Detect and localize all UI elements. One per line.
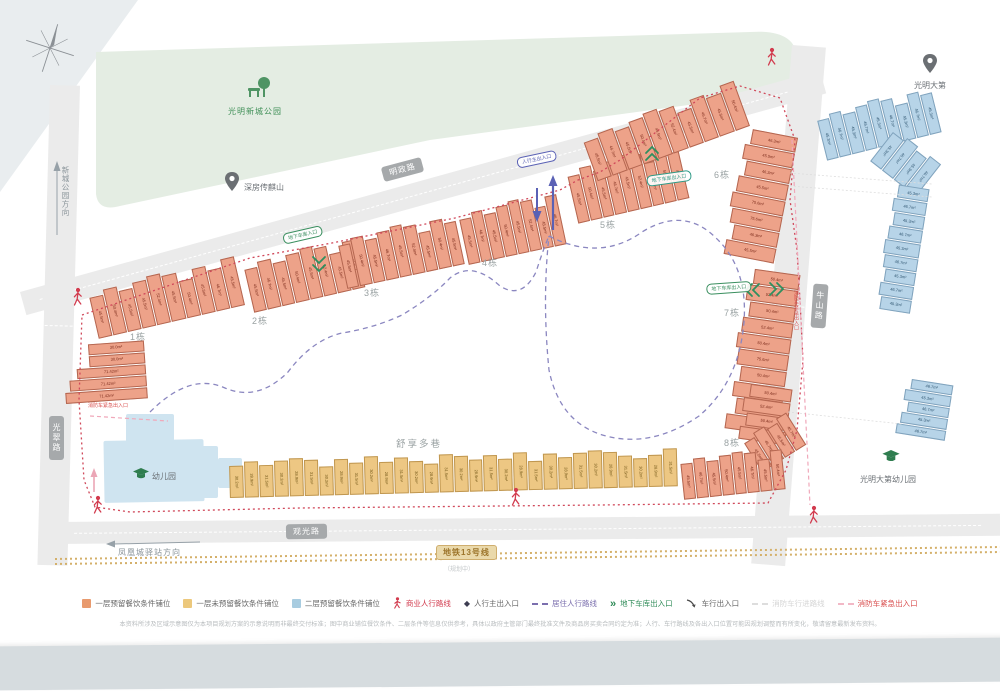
road-guanguang — [55, 514, 1000, 544]
legend-item: 一层未预留餐饮条件铺位 — [183, 598, 279, 609]
legend-label: 二层预留餐饮条件铺位 — [305, 598, 380, 609]
legend-item: ◆人行主出入口 — [464, 598, 519, 609]
legend-label: 一层预留餐饮条件铺位 — [95, 598, 170, 609]
kindergarten-building — [126, 414, 174, 444]
kindergarten-label: 幼儿园 — [152, 471, 176, 482]
arrow-up-head — [549, 175, 558, 186]
double-chevron-icon: » — [610, 600, 616, 608]
road-label-guanguang: 观光路 — [286, 524, 327, 540]
shop-unit: 31.5m² — [573, 453, 588, 489]
shop-unit: 31.5m² — [663, 448, 678, 486]
park-layer — [0, 0, 1000, 666]
landmark-chuanqishan-label: 深房传麒山 — [244, 182, 284, 193]
fire-arrow-head — [91, 468, 98, 477]
building-label-5: 5栋 — [600, 218, 616, 231]
second-floor-units-lower: 46.7m²45.3m²46.7m²45.3m²46.7m² — [897, 378, 953, 441]
shop-unit: 30.2m² — [633, 458, 648, 488]
diamond-icon: ◆ — [464, 599, 470, 608]
walking-person-icon — [393, 597, 402, 610]
landmark-guangmingdadi-label: 光明大第 — [914, 80, 946, 91]
legend-item: 一层预留餐饮条件铺位 — [82, 598, 170, 609]
shop-unit: 31.5m² — [483, 455, 498, 491]
shop-unit: 30.2m² — [453, 456, 468, 492]
shop-unit: 28.9m² — [469, 459, 484, 492]
walking-person-icon — [768, 48, 775, 65]
legend-label: 居住人行路线 — [552, 598, 597, 609]
building-3-units: 45.5m²50.4m²45.5m²46.7m²45.5m²52.4m²45.5… — [337, 215, 465, 289]
shop-unit: 28.9m² — [513, 452, 528, 490]
swatch-icon — [183, 599, 192, 608]
legend-item: 消防车紧急出入口 — [838, 598, 918, 609]
shop-unit: 28.9m² — [289, 458, 304, 496]
park-label: 光明新城公园 — [228, 106, 282, 117]
shop-unit: 31.5m² — [618, 455, 633, 488]
legend-label: 商业人行路线 — [406, 598, 451, 609]
building-label-6: 6栋 — [714, 168, 730, 181]
area-note: 舒享多巷 — [396, 436, 442, 450]
site-plan-page: { "site_plan": { "park": {"label": "光明新城… — [0, 0, 1000, 666]
kindergarten-building — [176, 446, 218, 498]
legend-item: 消防车行进路线 — [752, 598, 825, 609]
residential-walk-loop — [546, 220, 745, 439]
shop-unit: 30.2m² — [543, 454, 558, 490]
legend-label: 地下车库出入口 — [620, 598, 673, 609]
shop-unit: 28.9m² — [244, 461, 259, 497]
photo-bottom-shade — [0, 638, 1000, 691]
legend-item: 居住人行路线 — [532, 598, 597, 609]
swatch-icon — [292, 599, 301, 608]
street-shops-units: 30.2m²28.9m²31.5m²30.2m²28.9m²31.5m²30.2… — [229, 450, 678, 498]
shop-unit: 30.2m² — [588, 450, 603, 488]
building-4-units: 45.5m²46.7m²45.5m²50.4m²45.5m²52.4m²45.5… — [458, 193, 567, 265]
metro-line-note: （规划中） — [444, 564, 474, 573]
shop-unit: 30.2m² — [409, 461, 424, 494]
legend-item: 车行出入口 — [686, 598, 740, 609]
dash-icon — [752, 603, 768, 605]
direction-phoenix: 凤凰城驿站方向 — [118, 547, 181, 558]
location-pin-icon — [922, 54, 938, 81]
swatch-icon — [82, 599, 91, 608]
second-floor-units-column: 45.3m²46.7m²45.3m²46.7m²45.3m²46.7m²45.3… — [876, 184, 929, 314]
graduation-cap-icon — [882, 450, 900, 469]
building-label-8: 8栋 — [724, 436, 740, 449]
road-left — [37, 85, 80, 566]
legend-label: 消防车紧急出入口 — [858, 598, 918, 609]
shop-unit: 30.2m² — [319, 466, 334, 496]
building-1-stack-units: 30.0m²30.0m²71.42m²71.42m²71.42m² — [64, 340, 148, 403]
tree-bench-icon — [244, 74, 274, 109]
shop-unit: 28.9m² — [424, 463, 439, 493]
fire-entrance-east-label: 消防车紧急出入口 — [793, 290, 800, 330]
disclaimer-text: 本资料所涉及区域示意图仅为本项目规划方案的示意说明而非最终交付标准；图中商业铺位… — [70, 621, 930, 629]
shop-unit: 30.2m² — [498, 458, 513, 491]
shop-unit: 31.5m² — [394, 457, 409, 493]
metro-line-label: 地铁13号线 — [436, 545, 497, 560]
legend-item: 二层预留餐饮条件铺位 — [292, 598, 380, 609]
shop-unit: 31.5m² — [259, 465, 274, 498]
legend-label: 一层未预留餐饮条件铺位 — [196, 598, 279, 609]
routes-overlay — [0, 0, 1000, 666]
metro-line-13 — [55, 547, 1000, 564]
legend-label: 人行主出入口 — [474, 598, 519, 609]
shop-unit: 28.9m² — [334, 459, 349, 495]
dash-icon — [532, 603, 548, 605]
shop-unit: 31.5m² — [528, 460, 543, 490]
shop-unit: 28.9m² — [603, 452, 618, 488]
curved-arrow-icon — [686, 599, 698, 609]
graduation-cap-icon — [133, 468, 149, 486]
shop-unit: 28.9m² — [379, 461, 394, 494]
location-pin-icon — [224, 172, 240, 199]
building-label-1: 1栋 — [130, 330, 146, 343]
walking-person-icon — [94, 496, 101, 513]
shop-unit: 31.5m² — [304, 460, 319, 496]
road-label-mingzheng: 明政路 — [381, 157, 424, 182]
legend-item: »地下车库出入口 — [610, 598, 673, 609]
shop-unit: 31.5m² — [349, 462, 364, 495]
legend-item: 商业人行路线 — [393, 597, 451, 610]
building-label-3: 3栋 — [364, 286, 380, 299]
building-label-2: 2栋 — [252, 314, 268, 327]
building-label-4: 4栋 — [482, 256, 498, 269]
legend-label: 消防车行进路线 — [772, 598, 825, 609]
shop-unit: 30.2m² — [364, 456, 379, 494]
fire-entrance-west-label: 消防车紧急出入口 — [88, 402, 128, 409]
direction-park: 新城公园方向 — [60, 166, 71, 217]
dash-icon — [838, 603, 854, 605]
road-label-right: 牛山路 — [810, 284, 828, 329]
shop-unit: 31.5m² — [438, 454, 453, 492]
road-label-left: 光翠路 — [49, 416, 64, 460]
shop-unit: 28.9m² — [558, 457, 573, 490]
legend-label: 车行出入口 — [702, 598, 740, 609]
shop-unit: 28.9m² — [648, 454, 663, 487]
shop-unit: 30.2m² — [274, 461, 289, 497]
legend: 一层预留餐饮条件铺位一层未预留餐饮条件铺位二层预留餐饮条件铺位商业人行路线◆人行… — [0, 597, 1000, 610]
gmdd-kindergarten-label: 光明大第幼儿园 — [860, 474, 916, 485]
building-label-7: 7栋 — [724, 306, 740, 319]
shop-unit: 30.2m² — [229, 465, 244, 498]
